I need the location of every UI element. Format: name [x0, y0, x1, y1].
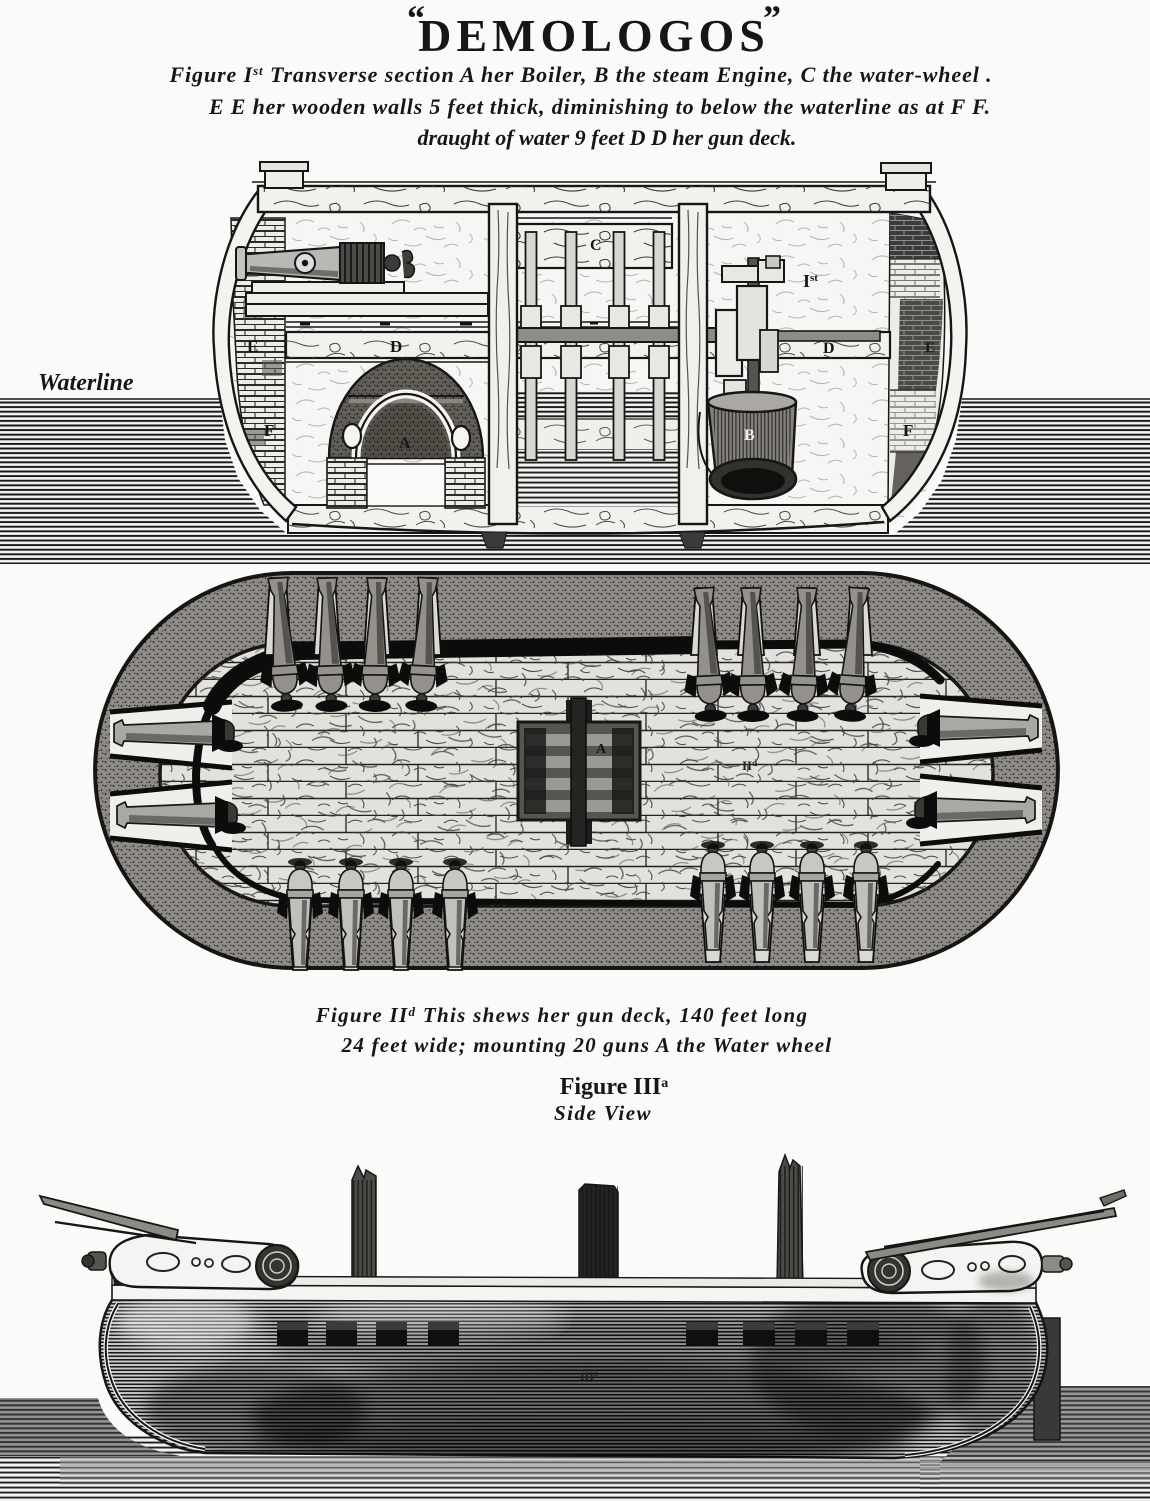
svg-text:D: D: [390, 337, 402, 356]
svg-text:Figure IIIa: Figure IIIa: [560, 1074, 669, 1100]
svg-text:Figure Ist Transverse section: Figure Ist Transverse section A her Boil…: [168, 62, 992, 87]
svg-text:draught of water 9 feet D D he: draught of water 9 feet D D her gun deck…: [418, 125, 797, 150]
svg-text:DEMOLOGOS: DEMOLOGOS: [418, 10, 770, 61]
svg-text:F: F: [264, 421, 274, 440]
svg-text:24 feet wide; mounting 20 guns: 24 feet wide; mounting 20 guns A the Wat…: [341, 1033, 833, 1057]
svg-text:E E her wooden walls 5 feet th: E E her wooden walls 5 feet thick, dimin…: [208, 94, 991, 119]
svg-text:B: B: [744, 427, 755, 444]
svg-text:“: “: [407, 0, 425, 38]
svg-text:F: F: [903, 421, 913, 440]
svg-text:Side View: Side View: [554, 1101, 652, 1125]
svg-text:A: A: [596, 742, 607, 757]
svg-text:C: C: [590, 237, 602, 254]
svg-text:”: ”: [763, 0, 781, 38]
svg-text:D: D: [823, 340, 835, 357]
svg-text:A: A: [399, 435, 411, 452]
svg-text:Figure IId This shews her gun: Figure IId This shews her gun deck, 140 …: [315, 1003, 809, 1027]
svg-text:Waterline: Waterline: [38, 370, 134, 396]
svg-text:E: E: [247, 337, 258, 356]
svg-text:E: E: [925, 340, 935, 356]
